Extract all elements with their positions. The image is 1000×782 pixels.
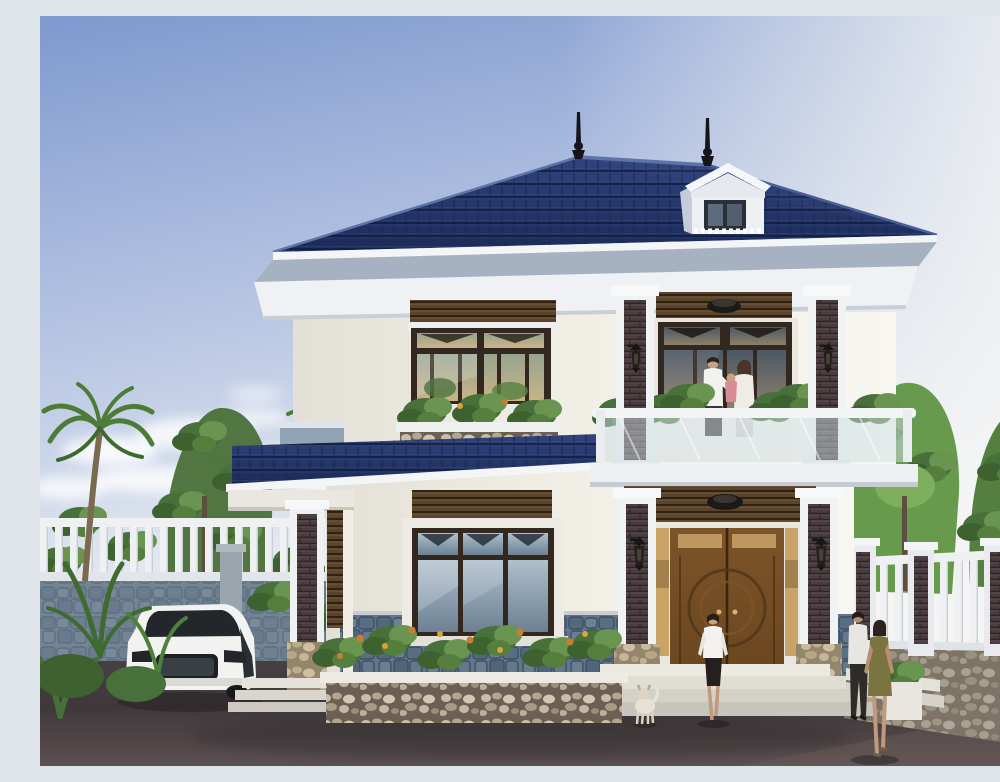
door-transom bbox=[678, 534, 722, 548]
blouse bbox=[703, 626, 723, 658]
door-handle-left bbox=[717, 610, 722, 615]
door-sidelight-right bbox=[785, 528, 798, 656]
balcony-ceiling-lamp bbox=[707, 299, 741, 313]
olive-dress bbox=[868, 636, 892, 696]
railing-handrail bbox=[592, 408, 916, 418]
upper-planter-cap bbox=[396, 422, 562, 432]
lower-window-assembly bbox=[398, 490, 568, 646]
car-windshield bbox=[144, 610, 241, 637]
porch-steps bbox=[228, 678, 334, 712]
car-headlight-right bbox=[224, 650, 246, 663]
shrub bbox=[106, 666, 166, 702]
porch-side-slats bbox=[327, 510, 343, 628]
planter-cap bbox=[320, 672, 628, 683]
door-sidelight-left bbox=[656, 528, 669, 656]
house-render: Photorealistic daytime rendering of a mo… bbox=[40, 16, 1000, 766]
planter-stone-wall bbox=[326, 683, 622, 723]
railing-post bbox=[903, 410, 912, 462]
left-fence-gate-post-cap bbox=[216, 544, 246, 552]
balcony-railing bbox=[592, 408, 916, 462]
railing-glass bbox=[596, 416, 912, 462]
dog-head bbox=[639, 689, 650, 700]
door-handle-right bbox=[733, 610, 738, 615]
balcony-child bbox=[725, 374, 737, 403]
entrance bbox=[613, 486, 843, 690]
upper-window-slat-band bbox=[410, 300, 556, 324]
entrance-pillar-right bbox=[795, 488, 843, 690]
entrance-ceiling-lamp bbox=[707, 494, 743, 510]
skirt bbox=[705, 658, 722, 686]
railing-post bbox=[596, 410, 605, 462]
car-headlight-left bbox=[132, 650, 152, 662]
side-parapet-cap bbox=[276, 422, 348, 428]
flower-bed bbox=[312, 625, 628, 723]
lower-window-slat-band bbox=[412, 490, 552, 520]
scene-canvas bbox=[40, 16, 1000, 766]
entrance-pillar-left bbox=[613, 488, 661, 690]
car-grille-mesh bbox=[160, 658, 214, 676]
